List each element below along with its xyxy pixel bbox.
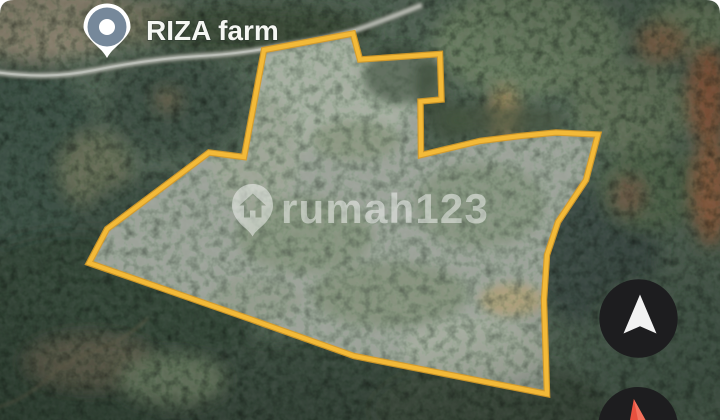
svg-text:RIZA farm: RIZA farm bbox=[146, 15, 279, 46]
svg-text:rumah123: rumah123 bbox=[281, 185, 489, 232]
